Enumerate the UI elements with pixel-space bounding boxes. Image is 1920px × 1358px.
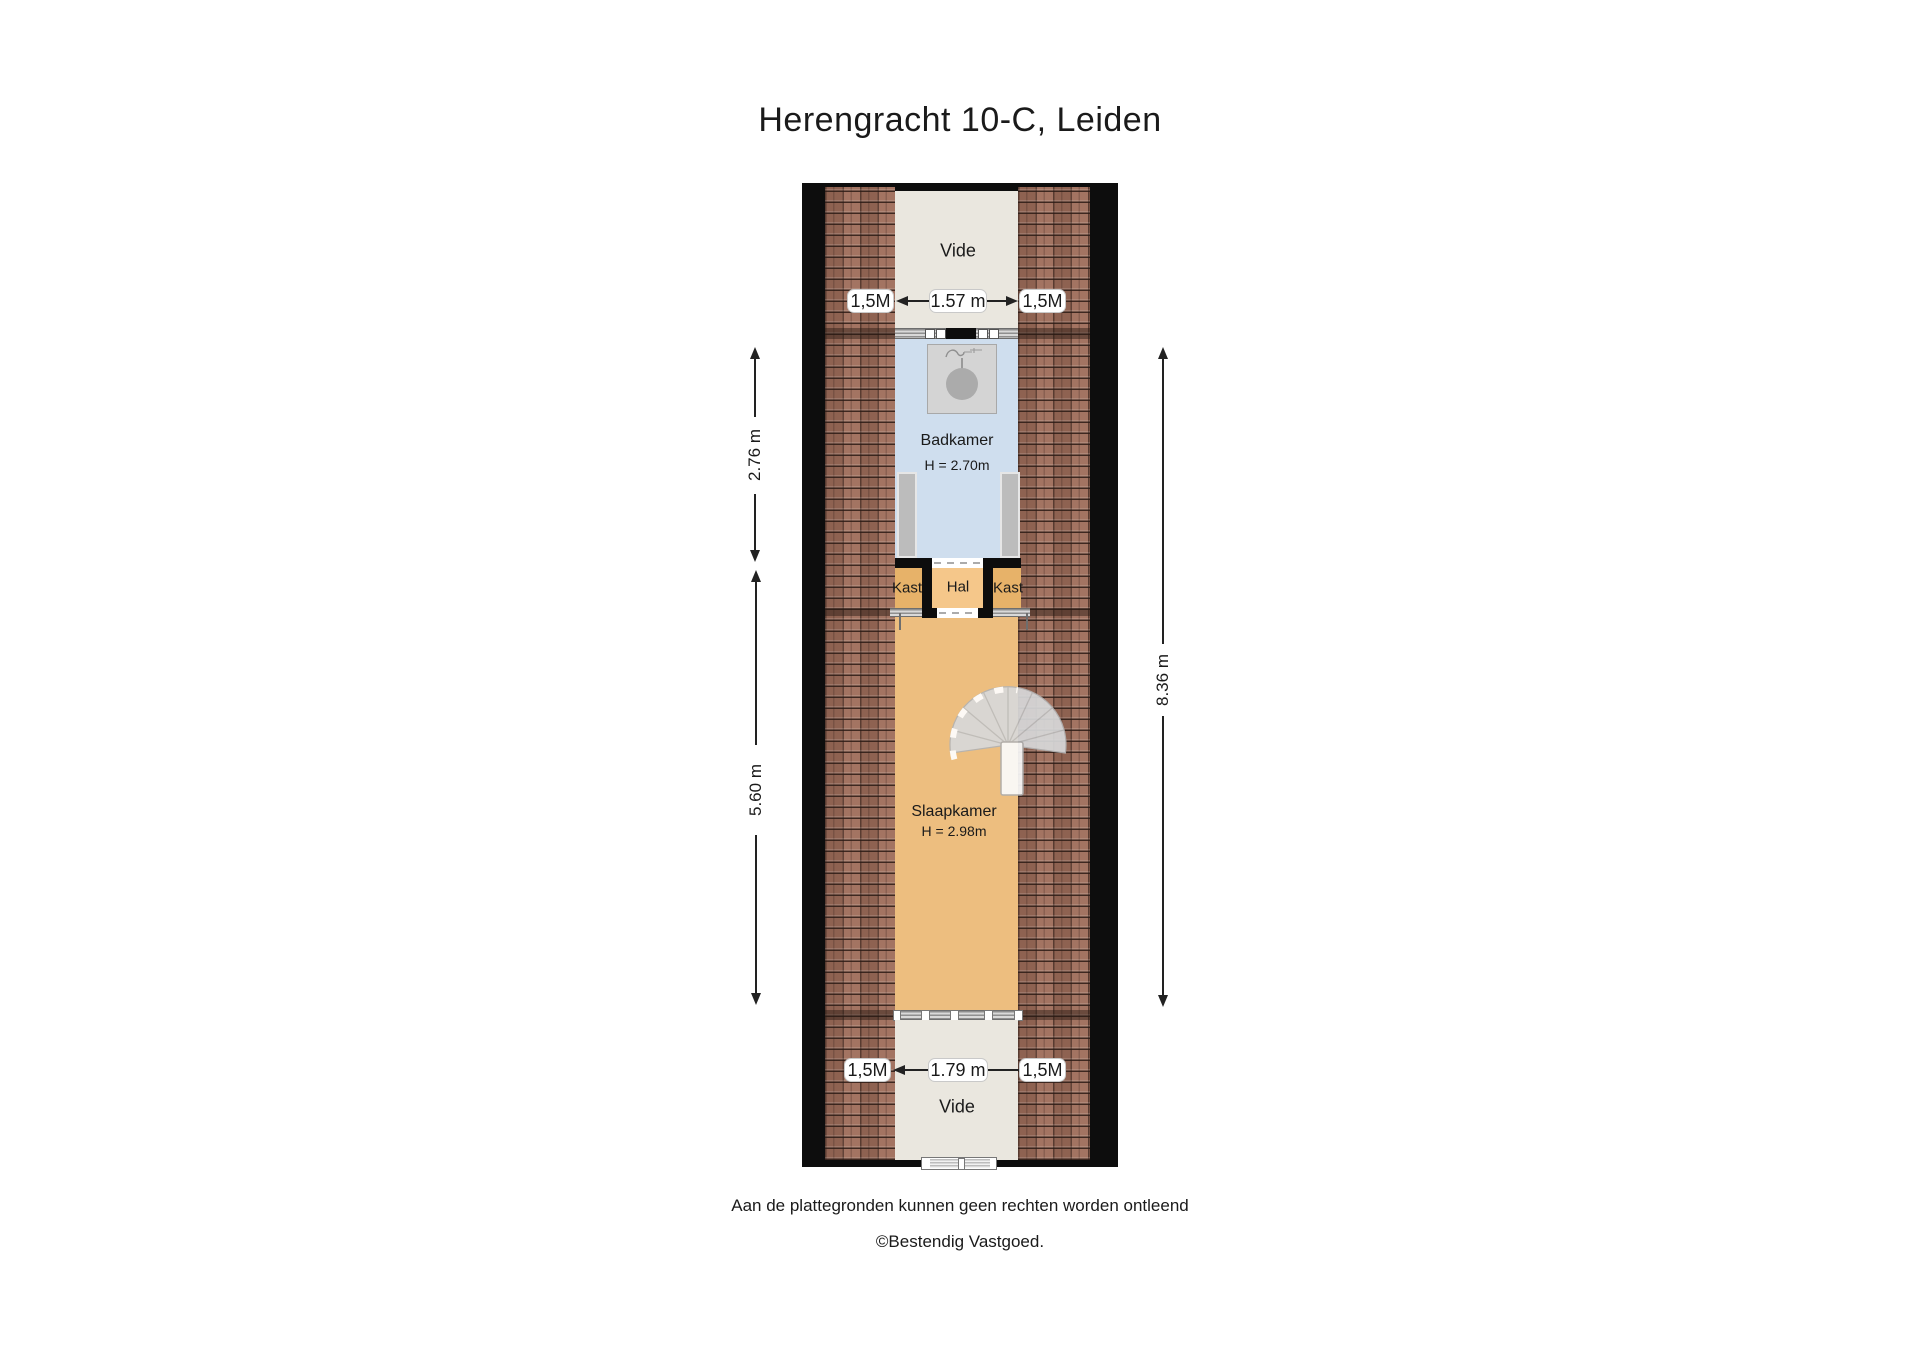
floorplan: Vide Badkamer H = 2.70m	[802, 183, 1118, 1167]
wall-hal-right	[983, 558, 993, 608]
facade-window-pane	[930, 1159, 958, 1168]
dim-left-lower: 5.60 m	[746, 764, 766, 816]
dim-marker-bottom-right: 1,5M	[1019, 1058, 1066, 1082]
knee-wall-left	[890, 608, 922, 617]
height-tick-left	[899, 613, 901, 630]
room-label-slaapkamer: Slaapkamer	[911, 803, 996, 821]
knee-wall-right	[993, 608, 1030, 617]
dim-arrowhead	[1006, 296, 1018, 306]
facade-window-pane	[964, 1159, 990, 1168]
spiral-staircase	[942, 663, 1092, 803]
dim-width-bottom: 1.79 m	[928, 1058, 988, 1082]
dim-arrowhead	[1158, 995, 1168, 1007]
room-label-vide-bottom: Vide	[939, 1097, 975, 1118]
dim-line	[754, 357, 756, 417]
top-wall	[895, 183, 1018, 191]
copyright-text: ©Bestendig Vastgoed.	[0, 1232, 1920, 1252]
wall-hal-bottom-right	[978, 608, 993, 618]
floorplan-page: Herengracht 10-C, Leiden Vide Badkamer	[0, 0, 1920, 1358]
dim-marker-text: 1,5M	[1022, 291, 1062, 312]
opening-badkamer-hal	[932, 558, 983, 568]
dim-line	[755, 835, 757, 995]
dim-marker-text: 1,5M	[847, 1060, 887, 1081]
wall-block-center	[946, 328, 976, 339]
dim-line	[755, 580, 757, 745]
room-height-slaapkamer: H = 2.98m	[922, 823, 987, 839]
disclaimer-text: Aan de plattegronden kunnen geen rechten…	[0, 1196, 1920, 1216]
dim-line	[1162, 716, 1164, 997]
page-title: Herengracht 10-C, Leiden	[0, 101, 1920, 140]
closet-door-left	[897, 472, 917, 558]
shower-drain	[946, 368, 978, 400]
dim-arrowhead	[751, 993, 761, 1005]
dim-marker-text: 1,5M	[850, 291, 890, 312]
wall-hal-bottom-left	[922, 608, 937, 618]
room-height-badkamer: H = 2.70m	[925, 457, 990, 473]
window-pane	[925, 329, 935, 339]
dim-width-text: 1.57 m	[930, 291, 985, 312]
window-pane	[978, 329, 988, 339]
dim-line	[986, 300, 1008, 302]
dim-line	[754, 494, 756, 552]
wall-hal-left	[922, 558, 932, 608]
dim-right-full: 8.36 m	[1153, 654, 1173, 706]
dim-marker-top-right: 1,5M	[1019, 289, 1066, 313]
dim-marker-top-left: 1,5M	[847, 289, 894, 313]
dim-width-top: 1.57 m	[929, 289, 987, 313]
dim-line	[906, 300, 930, 302]
dim-marker-text: 1,5M	[1022, 1060, 1062, 1081]
dim-line	[987, 1069, 1019, 1071]
room-label-vide-top: Vide	[940, 241, 976, 262]
room-label-kast-left: Kast	[892, 580, 922, 597]
height-tick-right	[1026, 613, 1028, 630]
dim-width-text: 1.79 m	[930, 1060, 985, 1081]
room-vide-bottom	[895, 1020, 1018, 1160]
room-label-badkamer: Badkamer	[921, 432, 994, 450]
facade-window-post	[958, 1158, 965, 1170]
dim-arrowhead	[750, 550, 760, 562]
dim-left-upper: 2.76 m	[745, 429, 765, 481]
window-pane	[936, 329, 946, 339]
opening-hal-slaapkamer	[937, 608, 978, 618]
dim-line	[1162, 357, 1164, 644]
dim-marker-bottom-left: 1,5M	[844, 1058, 891, 1082]
room-label-kast-right: Kast	[993, 580, 1023, 597]
room-label-hal: Hal	[947, 579, 970, 596]
window-pane	[989, 329, 999, 339]
dim-line	[903, 1069, 928, 1071]
closet-door-right	[1000, 472, 1020, 558]
